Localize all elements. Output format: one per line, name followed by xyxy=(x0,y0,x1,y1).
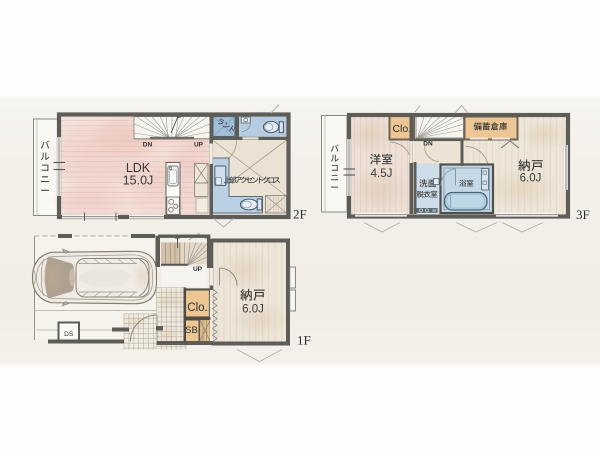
svg-text:Clo.: Clo. xyxy=(187,302,207,314)
svg-text:SB: SB xyxy=(185,325,198,336)
svg-text:6.0J: 6.0J xyxy=(520,173,542,185)
svg-text:UP: UP xyxy=(193,266,203,273)
svg-text:Clo.: Clo. xyxy=(392,123,411,135)
svg-text:3F: 3F xyxy=(576,207,590,222)
svg-text:DN: DN xyxy=(423,141,433,148)
svg-text:15.0J: 15.0J xyxy=(123,174,154,188)
svg-text:DS: DS xyxy=(64,331,74,338)
svg-text:UP: UP xyxy=(194,142,204,149)
svg-text:1F: 1F xyxy=(297,333,311,348)
svg-text:2F: 2F xyxy=(293,207,307,222)
svg-text:DN: DN xyxy=(143,142,153,149)
svg-text:6.0J: 6.0J xyxy=(242,304,264,316)
svg-text:4.5J: 4.5J xyxy=(371,168,393,180)
